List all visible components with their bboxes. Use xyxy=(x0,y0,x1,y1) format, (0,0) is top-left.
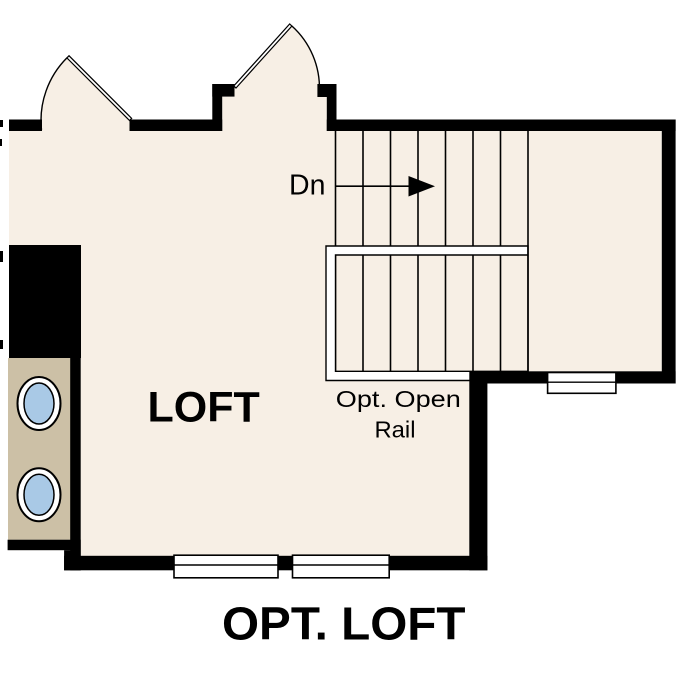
svg-text:Rail: Rail xyxy=(375,417,416,443)
svg-text:Opt. Open: Opt. Open xyxy=(336,386,461,412)
svg-text:OPT. LOFT: OPT. LOFT xyxy=(222,597,466,649)
svg-text:LOFT: LOFT xyxy=(148,384,260,432)
svg-text:Dn: Dn xyxy=(289,170,325,202)
